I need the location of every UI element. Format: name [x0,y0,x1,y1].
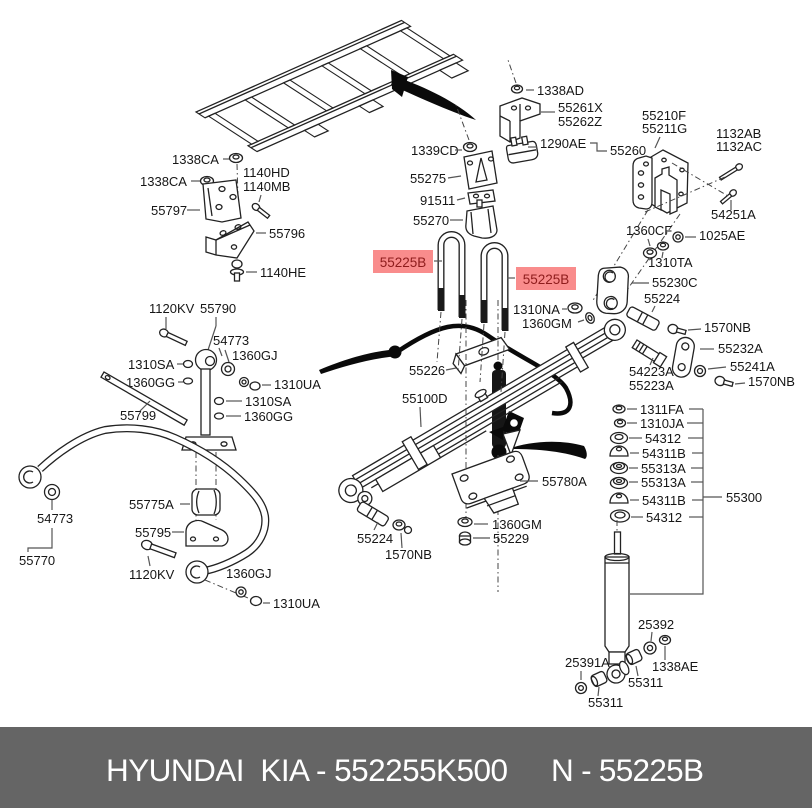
svg-text:1140MB: 1140MB [243,179,290,194]
svg-text:55261X: 55261X [558,100,603,115]
svg-text:1025AE: 1025AE [699,228,746,243]
svg-text:1140HE: 1140HE [260,265,306,280]
svg-text:1310SA: 1310SA [245,394,292,409]
svg-text:54311B: 54311B [642,493,686,508]
svg-text:1311FA: 1311FA [640,402,684,417]
svg-text:25392: 25392 [638,617,674,632]
svg-text:91511: 91511 [420,193,455,208]
svg-text:1570NB: 1570NB [385,547,432,562]
svg-text:55770: 55770 [19,553,55,568]
svg-text:1360GG: 1360GG [126,375,175,390]
svg-text:55275: 55275 [410,171,446,186]
svg-text:N - 55225B: N - 55225B [551,752,704,788]
svg-text:55780A: 55780A [542,474,587,489]
svg-text:1310TA: 1310TA [648,255,693,270]
svg-text:55229: 55229 [493,531,529,546]
svg-text:55260: 55260 [610,143,646,158]
svg-text:1570NB: 1570NB [704,320,751,335]
svg-text:55262Z: 55262Z [558,114,602,129]
svg-text:1120KV: 1120KV [149,301,195,316]
svg-text:1360GG: 1360GG [244,409,293,424]
svg-text:55223A: 55223A [629,378,674,393]
svg-text:55313A: 55313A [641,475,686,490]
svg-text:54312: 54312 [645,431,681,446]
svg-text:54312: 54312 [646,510,682,525]
svg-text:1338AE: 1338AE [652,659,699,674]
svg-text:1339CD: 1339CD [411,143,459,158]
svg-text:54223A: 54223A [629,364,674,379]
svg-text:55270: 55270 [413,213,449,228]
svg-text:55795: 55795 [135,525,171,540]
svg-text:1120KV: 1120KV [129,567,175,582]
svg-text:1310NA: 1310NA [513,302,560,317]
svg-text:1310UA: 1310UA [274,377,321,392]
svg-text:55225B: 55225B [523,272,570,287]
svg-text:54251A: 54251A [711,207,756,222]
svg-text:1570NB: 1570NB [748,374,795,389]
svg-text:55311: 55311 [588,695,623,710]
svg-text:55224: 55224 [644,291,680,306]
svg-text:55211G: 55211G [642,121,687,136]
svg-text:55311: 55311 [628,675,663,690]
svg-text:1290AE: 1290AE [540,136,587,151]
svg-text:55232A: 55232A [718,341,763,356]
svg-text:55241A: 55241A [730,359,775,374]
svg-text:55230C: 55230C [652,275,698,290]
svg-text:1360GJ: 1360GJ [226,566,272,581]
svg-text:1360GM: 1360GM [522,316,572,331]
svg-text:55300: 55300 [726,490,762,505]
svg-text:55799: 55799 [120,408,156,423]
svg-text:55224: 55224 [357,531,393,546]
svg-text:1360CF: 1360CF [626,223,672,238]
svg-text:1132AC: 1132AC [716,139,762,154]
svg-text:54773: 54773 [37,511,73,526]
svg-text:1360GJ: 1360GJ [232,348,278,363]
svg-text:55100D: 55100D [402,391,448,406]
svg-text:1338AD: 1338AD [537,83,584,98]
svg-text:54311B: 54311B [642,446,686,461]
svg-text:1310JA: 1310JA [640,416,684,431]
svg-text:55313A: 55313A [641,461,686,476]
svg-text:1360GM: 1360GM [492,517,542,532]
svg-text:1310UA: 1310UA [273,596,320,611]
svg-text:55790: 55790 [200,301,236,316]
svg-text:1310SA: 1310SA [128,357,175,372]
svg-text:55796: 55796 [269,226,305,241]
svg-text:55775A: 55775A [129,497,174,512]
svg-text:25391A: 25391A [565,655,610,670]
svg-text:55225B: 55225B [380,255,427,270]
svg-text:HYUNDAI KIA - 552255K500: HYUNDAI KIA - 552255K500 [106,752,508,788]
svg-text:55226: 55226 [409,363,445,378]
svg-text:54773: 54773 [213,333,249,348]
svg-text:1140HD: 1140HD [243,165,290,180]
svg-text:1338CA: 1338CA [172,152,219,167]
svg-text:55797: 55797 [151,203,187,218]
svg-text:1338CA: 1338CA [140,174,187,189]
